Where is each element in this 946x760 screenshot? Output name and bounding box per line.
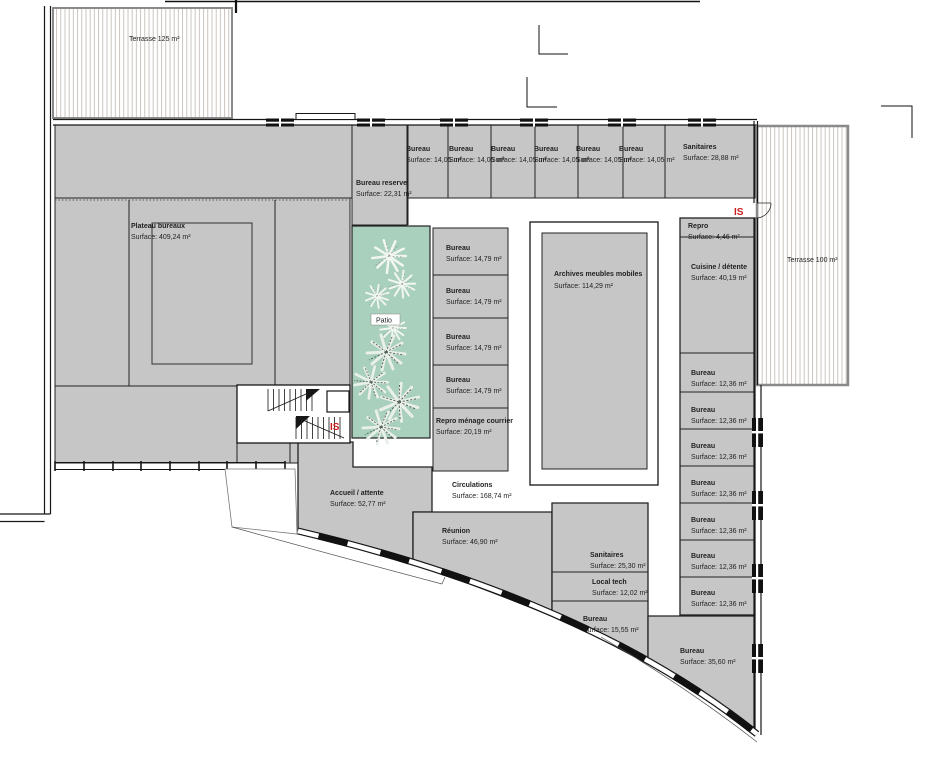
label-repro-name: Repro	[688, 223, 708, 230]
terrace-east: Terrasse 100 m²	[757, 126, 848, 385]
label-accueil-name: Accueil / attente	[330, 490, 384, 497]
window-symbol	[357, 119, 385, 127]
label-bureau-surface: Surface: 14,79 m²	[446, 256, 502, 263]
label-cuisine-name: Cuisine / détente	[691, 264, 747, 271]
window-symbol	[752, 418, 763, 447]
label-repro-surface: Surface: 4,46 m²	[688, 234, 740, 241]
label-bureau-name: Bureau	[691, 517, 715, 524]
label-bureau-name: Bureau	[691, 480, 715, 487]
label-bureau-name: Bureau	[619, 146, 643, 153]
floor-plan-canvas: Terrasse 125 m²	[0, 0, 946, 760]
patio-label: Patio	[376, 318, 392, 325]
label-reserve-surface: Surface: 22,31 m²	[356, 191, 412, 198]
window-symbol	[752, 491, 763, 520]
label-sanitaires-s-surface: Surface: 25,30 m²	[590, 563, 646, 570]
label-sanitaires-s-name: Sanitaires	[590, 552, 624, 559]
window-symbol	[688, 119, 716, 127]
floor-plan-drawing: Terrasse 125 m²	[0, 0, 946, 760]
label-sanitaires-n-name: Sanitaires	[683, 144, 717, 151]
label-bureau-name: Bureau	[446, 245, 470, 252]
label-plateau-name: Plateau bureaux	[131, 223, 185, 230]
window-symbol	[440, 119, 468, 127]
is-marker-east: IS	[734, 207, 744, 218]
label-plateau-surface: Surface: 409,24 m²	[131, 234, 191, 241]
terrace-nw-label: Terrasse 125 m²	[129, 36, 180, 43]
label-bureau-name: Bureau	[691, 553, 715, 560]
label-bureau-name: Bureau	[534, 146, 558, 153]
label-bureau-name: Bureau	[691, 407, 715, 414]
label-bureau-name: Bureau	[691, 370, 715, 377]
label-archives-name: Archives meubles mobiles	[554, 271, 642, 278]
terrace-northwest: Terrasse 125 m²	[53, 8, 232, 118]
label-bureau-name: Bureau	[446, 334, 470, 341]
label-reserve-name: Bureau reserve	[356, 180, 407, 187]
label-archives-surface: Surface: 114,29 m²	[554, 283, 614, 290]
label-sanitaires-n-surface: Surface: 28,88 m²	[683, 155, 739, 162]
label-repro-menage-name: Repro ménage courrier	[436, 418, 513, 425]
label-bureau-surface: Surface: 12,36 m²	[691, 418, 747, 425]
window-symbol	[608, 119, 636, 127]
wall-recess	[296, 114, 355, 120]
exterior-ramp	[225, 469, 297, 534]
terrace-east-label: Terrasse 100 m²	[787, 257, 838, 264]
label-bureau-surface: Surface: 14,79 m²	[446, 345, 502, 352]
window-symbol	[752, 564, 763, 593]
label-bureau-name: Bureau	[406, 146, 430, 153]
label-bureau-surface: Surface: 12,36 m²	[691, 564, 747, 571]
label-bureau-surface: Surface: 14,05 m²	[619, 157, 675, 164]
label-bureau-surface: Surface: 35,60 m²	[680, 659, 736, 666]
label-bureau-name: Bureau	[446, 288, 470, 295]
label-bureau-surface: Surface: 12,36 m²	[691, 454, 747, 461]
stairs: IS	[237, 385, 350, 443]
patio: Patio	[348, 226, 430, 444]
room-plateau-edge	[237, 443, 290, 463]
window-symbol	[520, 119, 548, 127]
room-bureau-reserve	[352, 125, 407, 225]
label-bureau-name: Bureau	[691, 443, 715, 450]
label-bureau-name: Bureau	[680, 648, 704, 655]
label-circulations-name: Circulations	[452, 482, 493, 489]
label-bureau-surface: Surface: 12,36 m²	[691, 381, 747, 388]
label-reunion-surface: Surface: 46,90 m²	[442, 539, 498, 546]
label-bureau-name: Bureau	[449, 146, 473, 153]
elevator-shaft	[327, 391, 349, 412]
window-symbol	[752, 644, 763, 673]
label-bureau-surface: Surface: 14,79 m²	[446, 299, 502, 306]
label-localtech-surface: Surface: 12,02 m²	[592, 590, 648, 597]
label-bureau-name: Bureau	[576, 146, 600, 153]
is-marker-stairs: IS	[330, 422, 340, 433]
label-cuisine-surface: Surface: 40,19 m²	[691, 275, 747, 282]
label-bureau-surface: Surface: 14,79 m²	[446, 388, 502, 395]
room-archives	[530, 222, 658, 485]
label-bureau-surface: Surface: 12,36 m²	[691, 601, 747, 608]
label-localtech-name: Local tech	[592, 579, 627, 586]
label-bureau-name: Bureau	[691, 590, 715, 597]
label-reunion-name: Réunion	[442, 528, 470, 535]
label-bureau-surface: Surface: 12,36 m²	[691, 491, 747, 498]
north-wall	[53, 120, 757, 126]
label-circulations-surface: Surface: 168,74 m²	[452, 493, 512, 500]
window-symbol	[266, 119, 294, 127]
label-repro-menage-surface: Surface: 20,19 m²	[436, 429, 492, 436]
label-bureau-surface: Surface: 15,55 m²	[583, 627, 639, 634]
label-accueil-surface: Surface: 52,77 m²	[330, 501, 386, 508]
label-bureau-name: Bureau	[583, 616, 607, 623]
label-bureau-name: Bureau	[446, 377, 470, 384]
label-bureau-surface: Surface: 12,36 m²	[691, 528, 747, 535]
label-bureau-name: Bureau	[491, 146, 515, 153]
